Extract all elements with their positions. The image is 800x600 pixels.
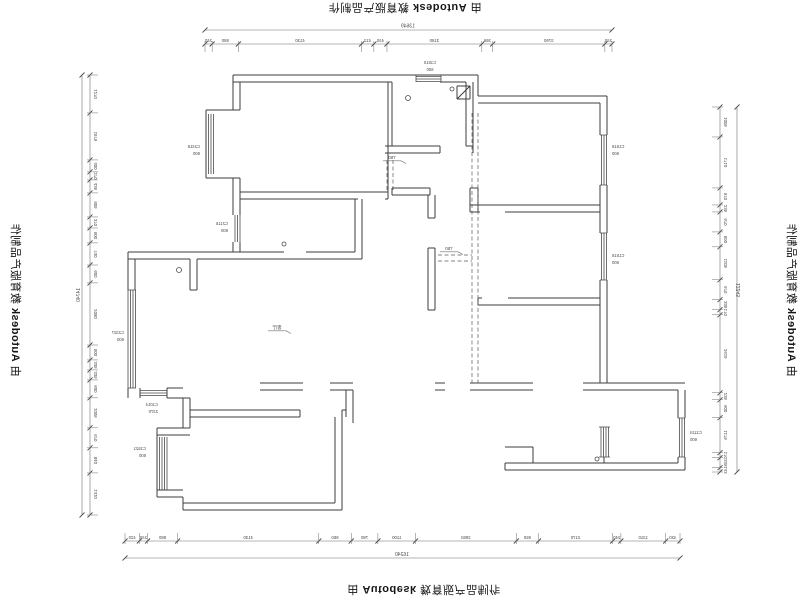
- window-tag-line: C2418: [187, 144, 200, 149]
- dim-segment-label: 1105: [723, 259, 728, 269]
- dim-segment-label: 840: [93, 457, 98, 465]
- window-tag-line: C1518: [611, 144, 624, 149]
- dim-segment-label: 500: [93, 349, 98, 357]
- dim-segment-label: 1005: [723, 117, 728, 127]
- tag-small-window: C10142370: [145, 402, 158, 414]
- window-tag-line: 600: [116, 337, 124, 342]
- floorplan-canvas: 由 Autodesk 教育版产品制作 由 Autodesk 教育版产品制作 由 …: [0, 0, 800, 600]
- dim-segment-label: 240: [139, 535, 147, 540]
- drain-circle: [450, 87, 454, 91]
- dim-segment-label: 143: [723, 466, 728, 474]
- dim-segment-label: 400: [93, 162, 98, 170]
- window-tag-line: 600: [611, 151, 619, 156]
- tag-bath-window: C1124600: [689, 430, 702, 442]
- window-tag-line: C1014: [145, 402, 158, 407]
- dim-segment-label: 3180: [429, 38, 439, 43]
- tag-kitchen-window: C1510600: [423, 60, 436, 72]
- dimension-chain-right: 1005171057023567050011056703351702615235…: [712, 105, 728, 475]
- dim-segment-label: 600: [723, 405, 728, 413]
- window-tag-line: 600: [689, 437, 697, 442]
- dim-segment-label: 4130: [295, 38, 305, 43]
- dimension-chain-left: 1270157540027043580537050074060020805003…: [87, 73, 98, 518]
- dim-segment-label: 335: [93, 371, 98, 379]
- window-symbols: [128, 75, 685, 490]
- overall-dimension-top: 13649: [203, 24, 615, 33]
- window-tag-line: C2115: [215, 221, 228, 226]
- window-tag-line: 600: [426, 67, 434, 72]
- dim-segment-label: 235: [723, 393, 728, 401]
- watermark-right: 由 Autodesk 教育版产品制作: [785, 223, 799, 376]
- dim-segment-label: 600: [93, 385, 98, 393]
- dimension-chains: 2408804130413440318036637602401364942024…: [76, 24, 742, 561]
- plan-notes: 750750客厅: [268, 155, 463, 334]
- window-tag-line: C1518: [611, 253, 624, 258]
- dim-segment-label: 1410: [93, 489, 98, 499]
- overall-dimension-bottom: 16240: [123, 552, 683, 561]
- dim-segment-label: 240: [613, 535, 621, 540]
- dim-segment-label: 740: [93, 250, 98, 258]
- dim-segment-label: 2080: [93, 309, 98, 319]
- note-kitchen-demo: 750: [383, 155, 406, 164]
- note-text: 750: [388, 155, 396, 160]
- dimension-chain-top: 240880413041344031803663760240: [203, 38, 615, 52]
- dim-segment-label: 1175: [723, 431, 728, 441]
- tag-study-window: C2115600: [215, 221, 228, 233]
- note-text: 750: [445, 246, 453, 251]
- dim-segment-label: 2615: [723, 349, 728, 359]
- watermark-bottom: 由 Autodesk 教育版产品制作: [347, 583, 500, 597]
- tag-bedroom-b-window: C1518600: [611, 253, 624, 265]
- drain-circle: [406, 96, 411, 101]
- window-tag-line: 2370: [148, 409, 158, 414]
- dim-segment-label: 500: [723, 236, 728, 244]
- dim-segment-label: 780: [360, 535, 368, 540]
- dimension-chain-bottom: 4202408804130950780110029506502170240131…: [123, 533, 683, 544]
- dim-segment-label: 170: [723, 309, 728, 317]
- dim-segment-label: 2170: [570, 535, 580, 540]
- window-tag-line: 600: [611, 260, 619, 265]
- dim-segment-label: 1270: [93, 89, 98, 99]
- watermark-left: 由 Autodesk 教育版产品制作: [9, 223, 23, 376]
- dim-segment-label: 240: [604, 38, 612, 43]
- dim-segment-label: 370: [93, 219, 98, 227]
- dim-overall-label: 14740: [76, 288, 82, 302]
- window-tag-line: 600: [220, 228, 228, 233]
- dim-segment-label: 270: [93, 172, 98, 180]
- note-hall-demo: 750: [440, 246, 463, 255]
- dim-segment-label: 650: [523, 535, 531, 540]
- dim-segment-label: 4130: [243, 535, 253, 540]
- note-text: 客厅: [272, 324, 282, 331]
- dim-overall-label: 16240: [395, 552, 409, 558]
- window-tag-line: C2327: [111, 330, 124, 335]
- dim-segment-label: 1710: [723, 158, 728, 168]
- dim-segment-label: 880: [221, 38, 229, 43]
- dim-segment-label: 240: [204, 38, 212, 43]
- dim-segment-label: 880: [158, 535, 166, 540]
- dim-segment-label: 235: [723, 205, 728, 213]
- dim-segment-label: 3760: [543, 38, 553, 43]
- tag-bay-upper-left: C2418600: [187, 144, 200, 156]
- dim-segment-label: 435: [93, 183, 98, 191]
- tag-bedroom-bay: C1521600: [133, 446, 146, 458]
- dim-segment-label: 335: [93, 361, 98, 369]
- tag-west-wing-window: C2327600: [111, 330, 124, 342]
- dim-segment-label: 670: [93, 434, 98, 442]
- tag-bedroom-a-window: C1518600: [611, 144, 624, 156]
- dim-segment-label: 420: [128, 535, 136, 540]
- note-living-room: 客厅: [268, 324, 291, 334]
- window-tag-line: 600: [138, 453, 146, 458]
- drain-circle: [595, 457, 599, 461]
- dim-segment-label: 413: [364, 38, 372, 43]
- dim-segment-label: 600: [93, 270, 98, 278]
- overall-dimension-left: 14740: [76, 73, 85, 518]
- drain-circle: [282, 242, 286, 246]
- dim-segment-label: 420: [669, 535, 677, 540]
- dim-segment-label: 950: [331, 535, 339, 540]
- drawing-sheet: 由 Autodesk 教育版产品制作 由 Autodesk 教育版产品制作 由 …: [0, 0, 800, 600]
- overall-dimension-right: 12243: [735, 105, 743, 475]
- dim-segment-label: 670: [723, 286, 728, 294]
- dim-segment-label: 570: [723, 193, 728, 201]
- dim-segment-label: 500: [93, 232, 98, 240]
- dim-overall-label: 12243: [736, 283, 742, 297]
- dim-segment-label: 1310: [638, 535, 648, 540]
- drain-circle: [177, 268, 182, 273]
- dim-segment-label: 1100: [391, 535, 401, 540]
- window-tag-line: C1521: [133, 446, 146, 451]
- dim-segment-label: 2950: [461, 535, 471, 540]
- dim-segment-label: 440: [376, 38, 384, 43]
- dim-segment-label: 1575: [93, 132, 98, 142]
- dim-overall-label: 13649: [401, 24, 415, 30]
- window-tag-line: 600: [192, 151, 200, 156]
- window-tag-line: C1510: [423, 60, 436, 65]
- dim-segment-label: 1005: [93, 408, 98, 418]
- dim-segment-label: 805: [93, 201, 98, 209]
- watermark-top: 由 Autodesk 教育版产品制作: [328, 1, 481, 15]
- dim-segment-label: 670: [723, 218, 728, 226]
- dim-segment-label: 366: [483, 38, 491, 43]
- window-tag-line: C1124: [689, 430, 702, 435]
